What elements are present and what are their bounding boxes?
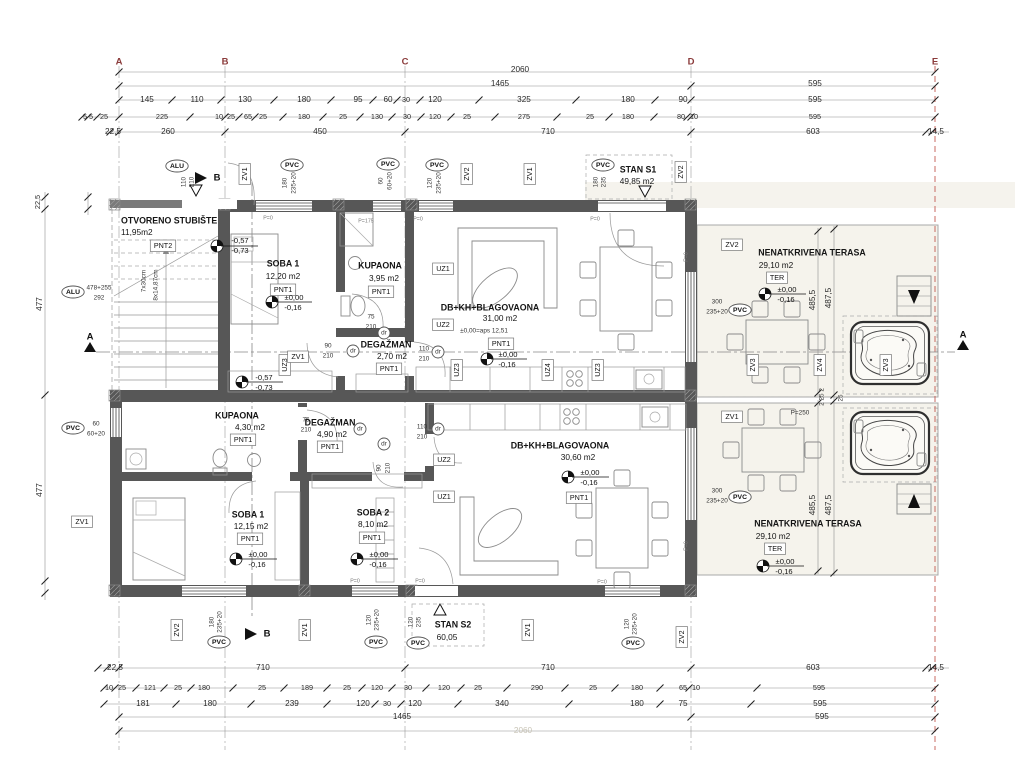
- plan-label: 477: [35, 483, 44, 497]
- svg-text:180: 180: [282, 177, 289, 188]
- svg-text:595: 595: [809, 112, 821, 121]
- svg-text:ZV3: ZV3: [748, 358, 757, 371]
- svg-text:B: B: [222, 57, 229, 68]
- plan-label: 25: [838, 394, 845, 402]
- svg-text:±0,00: ±0,00: [581, 468, 600, 477]
- svg-text:31,00 m2: 31,00 m2: [483, 313, 518, 323]
- plan-label: 25: [474, 683, 482, 692]
- grid-letter-e: E: [932, 57, 938, 68]
- plan-label: PVC: [365, 636, 387, 648]
- plan-label: 14,5: [928, 663, 944, 672]
- svg-text:300: 300: [712, 488, 723, 495]
- plan-label: 710: [541, 127, 555, 136]
- svg-text:4,30 m2: 4,30 m2: [235, 422, 265, 432]
- plan-label: 25: [586, 112, 594, 121]
- plan-label: 485,5: [808, 494, 817, 515]
- svg-text:UZ1: UZ1: [436, 264, 450, 273]
- plan-label: -0,73: [231, 246, 248, 255]
- plan-label: 25: [343, 683, 351, 692]
- plan-label: 30: [383, 699, 391, 708]
- plan-label: ZV3: [880, 355, 892, 376]
- plan-label: 189: [301, 683, 313, 692]
- plan-label: 477: [35, 297, 44, 311]
- plan-label: PVC: [377, 158, 399, 170]
- plan-label: 180: [630, 699, 644, 708]
- section-letter-a-right: A: [960, 330, 967, 341]
- svg-text:235+20: 235+20: [436, 172, 443, 194]
- plan-label: TER: [765, 543, 786, 555]
- svg-text:-0,73: -0,73: [255, 383, 272, 392]
- plan-label: PVC: [592, 159, 614, 171]
- svg-text:SOBA 1: SOBA 1: [267, 258, 300, 268]
- svg-text:STAN S1: STAN S1: [620, 164, 657, 174]
- svg-text:90: 90: [678, 95, 688, 104]
- svg-text:12,15 m2: 12,15 m2: [234, 521, 269, 531]
- svg-text:25: 25: [258, 683, 266, 692]
- plan-label: 25: [339, 112, 347, 121]
- svg-text:C: C: [402, 57, 409, 68]
- svg-text:180: 180: [631, 683, 643, 692]
- plan-label: 90: [324, 343, 332, 350]
- plan-label: 300: [712, 488, 723, 495]
- plan-label: ZV2: [675, 162, 687, 183]
- plan-label: 25: [227, 112, 235, 121]
- plan-label: 10: [105, 683, 113, 692]
- plan-label: 130: [371, 112, 383, 121]
- plan-label: 290: [531, 683, 543, 692]
- plan-label: 487,5: [824, 287, 833, 308]
- svg-text:25: 25: [343, 683, 351, 692]
- plan-label: 8,10 m2: [358, 519, 388, 529]
- plan-label: PNT1: [237, 533, 262, 545]
- plan-label: 595: [813, 683, 825, 692]
- svg-text:325: 325: [517, 95, 531, 104]
- svg-text:P=0: P=0: [590, 216, 600, 222]
- plan-label: P=0: [597, 579, 607, 585]
- plan-label: P=0: [413, 216, 423, 222]
- svg-text:595: 595: [808, 79, 822, 88]
- plan-label: 595: [809, 112, 821, 121]
- svg-text:P=250: P=250: [791, 410, 810, 417]
- plan-label: UZ3: [451, 360, 463, 381]
- svg-text:25: 25: [474, 683, 482, 692]
- plan-label: ZV2: [171, 620, 183, 641]
- svg-text:90: 90: [376, 464, 383, 472]
- svg-text:-0,16: -0,16: [580, 478, 597, 487]
- svg-text:-0,73: -0,73: [231, 246, 248, 255]
- svg-text:±0,00: ±0,00: [285, 293, 304, 302]
- svg-text:290: 290: [531, 683, 543, 692]
- svg-text:485,5: 485,5: [808, 494, 817, 515]
- svg-text:5: 5: [83, 112, 87, 121]
- plan-label: 340: [495, 699, 509, 708]
- svg-text:120: 120: [408, 616, 415, 627]
- plan-label: 120: [429, 112, 441, 121]
- plan-label: 11,95m2: [121, 227, 153, 237]
- svg-text:25: 25: [838, 394, 845, 402]
- plan-label: 2,70 m2: [377, 351, 407, 361]
- plan-label: 235: [416, 616, 423, 627]
- svg-text:PVC: PVC: [285, 162, 299, 169]
- svg-text:PNT1: PNT1: [570, 493, 588, 502]
- plan-label: 235+20: [706, 498, 728, 505]
- plan-label: -0,16: [580, 478, 597, 487]
- plan-label: 60: [383, 95, 393, 104]
- plan-label: 120: [438, 683, 450, 692]
- plan-label: 25: [174, 683, 182, 692]
- plan-label: -0,16: [498, 360, 515, 369]
- plan-label: 65: [244, 112, 252, 121]
- plan-label: ZV1: [288, 351, 309, 363]
- floor-plan-drawing: ABCDE20601465595145110130180956030120325…: [0, 0, 1024, 768]
- svg-text:11,95m2: 11,95m2: [121, 227, 153, 237]
- svg-text:±0,00: ±0,00: [776, 557, 795, 566]
- svg-text:±0,00=aps 12,51: ±0,00=aps 12,51: [460, 328, 508, 335]
- svg-text:60: 60: [378, 177, 385, 185]
- svg-text:30: 30: [383, 699, 391, 708]
- plan-label: PVC: [407, 637, 429, 649]
- svg-text:P=0: P=0: [350, 578, 360, 584]
- plan-label: 235+20: [436, 172, 443, 194]
- svg-text:60+20: 60+20: [387, 172, 394, 190]
- svg-text:25: 25: [227, 112, 235, 121]
- plan-label: ZV2: [676, 627, 688, 648]
- svg-text:75: 75: [367, 314, 375, 321]
- plan-label: -0,16: [369, 560, 386, 569]
- svg-text:2 25 2: 2 25 2: [819, 388, 826, 406]
- svg-text:29,10 m2: 29,10 m2: [756, 531, 791, 541]
- plan-label: ALU: [62, 286, 84, 298]
- svg-text:120: 120: [408, 699, 422, 708]
- svg-text:25: 25: [589, 683, 597, 692]
- plan-label: 180: [209, 616, 216, 627]
- svg-text:60: 60: [92, 421, 100, 428]
- svg-text:A: A: [960, 330, 967, 341]
- plan-label: ±0,00: [370, 550, 389, 559]
- svg-text:30: 30: [404, 683, 412, 692]
- svg-text:PVC: PVC: [430, 162, 444, 169]
- svg-text:210: 210: [301, 427, 312, 434]
- plan-label: 180: [621, 95, 635, 104]
- plan-label: PVC: [62, 422, 84, 434]
- plan-label: 180: [593, 176, 600, 187]
- svg-text:2060: 2060: [511, 65, 530, 74]
- svg-text:PVC: PVC: [733, 307, 747, 314]
- svg-text:25: 25: [339, 112, 347, 121]
- grid-letter-b: B: [222, 57, 229, 68]
- svg-text:ZV2: ZV2: [462, 167, 471, 180]
- plan-label: ±0,00: [778, 285, 797, 294]
- plan-label: 710: [256, 663, 270, 672]
- plan-label: P=250: [791, 410, 810, 417]
- room-label-db-upper: DB+KH+BLAGOVAONA: [441, 302, 540, 312]
- plan-label: 60: [378, 177, 385, 185]
- svg-text:dr: dr: [381, 330, 388, 337]
- plan-label: 22,5: [107, 663, 123, 672]
- room-label-terasa-lower: NENATKRIVENA TERASA: [754, 518, 862, 528]
- svg-text:29,10 m2: 29,10 m2: [759, 260, 794, 270]
- svg-text:110: 110: [417, 424, 428, 431]
- svg-text:235+20: 235+20: [706, 309, 728, 316]
- plan-label: ±0,00: [776, 557, 795, 566]
- svg-text:260: 260: [161, 127, 175, 136]
- svg-text:130: 130: [238, 95, 252, 104]
- plan-label: 60: [92, 421, 100, 428]
- svg-text:10: 10: [105, 683, 113, 692]
- plan-label: ±0,00: [249, 550, 268, 559]
- svg-text:340: 340: [495, 699, 509, 708]
- svg-text:KUPAONA: KUPAONA: [215, 410, 259, 420]
- plan-label: P=0: [590, 216, 600, 222]
- plan-label: 10: [690, 112, 698, 121]
- plan-label: PNT1: [368, 286, 393, 298]
- plan-label: 275: [518, 112, 530, 121]
- plan-label: 120: [366, 614, 373, 625]
- svg-text:14,5: 14,5: [928, 127, 944, 136]
- svg-text:275: 275: [518, 112, 530, 121]
- plan-label: 130: [238, 95, 252, 104]
- svg-text:PNT1: PNT1: [363, 533, 381, 542]
- svg-text:UZ2: UZ2: [436, 320, 450, 329]
- plan-label: 235+20: [217, 611, 224, 633]
- room-label-kupaona-upper: KUPAONA: [358, 260, 402, 270]
- plan-label: 603: [806, 663, 820, 672]
- plan-label: 29,10 m2: [759, 260, 794, 270]
- svg-text:P=0: P=0: [415, 578, 425, 584]
- plan-label: UZ3: [592, 360, 604, 381]
- svg-text:22,5: 22,5: [105, 127, 121, 136]
- plan-label: P=0: [263, 215, 273, 221]
- plan-label: ZV4: [814, 355, 826, 376]
- plan-label: ZV1: [299, 620, 311, 641]
- plan-label: PVC: [729, 304, 751, 316]
- plan-label: ZV1: [722, 411, 743, 423]
- svg-text:-0,57: -0,57: [231, 236, 248, 245]
- svg-text:110: 110: [419, 346, 430, 353]
- svg-text:487,5: 487,5: [824, 494, 833, 515]
- svg-text:ZV2: ZV2: [677, 630, 686, 643]
- plan-label: dr: [432, 346, 444, 358]
- svg-text:210: 210: [189, 176, 196, 187]
- plan-label: 25: [259, 112, 267, 121]
- plan-label: 90: [678, 95, 688, 104]
- svg-text:120: 120: [429, 112, 441, 121]
- room-label-soba1-lower: SOBA 1: [232, 509, 265, 519]
- plan-label: 25: [463, 112, 471, 121]
- plan-label: 22,5: [105, 127, 121, 136]
- plan-label: 180: [622, 112, 634, 121]
- plan-label: 180: [282, 177, 289, 188]
- svg-text:PNT1: PNT1: [372, 287, 390, 296]
- plan-label: 292: [94, 295, 105, 302]
- svg-text:12,20 m2: 12,20 m2: [266, 271, 301, 281]
- plan-label: 30: [403, 112, 411, 121]
- svg-text:30,60 m2: 30,60 m2: [561, 452, 596, 462]
- svg-text:181: 181: [136, 699, 150, 708]
- svg-text:180: 180: [622, 112, 634, 121]
- plan-label: ±0,00: [285, 293, 304, 302]
- plan-label: 49,85 m2: [620, 176, 655, 186]
- plan-label: 120: [408, 616, 415, 627]
- plan-label: 450: [313, 127, 327, 136]
- plan-label: 65: [679, 683, 687, 692]
- plan-label: 180: [298, 112, 310, 121]
- svg-text:OTVORENO STUBIŠTE: OTVORENO STUBIŠTE: [121, 214, 217, 225]
- svg-text:120: 120: [356, 699, 370, 708]
- svg-text:ZV1: ZV1: [523, 623, 532, 636]
- svg-text:60,05: 60,05: [437, 632, 458, 642]
- svg-text:SOBA 1: SOBA 1: [232, 509, 265, 519]
- unit-label-s2: STAN S2: [435, 619, 472, 629]
- svg-text:60+20: 60+20: [87, 431, 105, 438]
- plan-label: 210: [385, 462, 392, 473]
- svg-text:PVC: PVC: [369, 639, 383, 646]
- svg-text:±0,00: ±0,00: [778, 285, 797, 294]
- svg-text:TER: TER: [770, 273, 784, 282]
- svg-text:10: 10: [690, 112, 698, 121]
- svg-text:478+255: 478+255: [86, 285, 112, 292]
- plan-label: 235+20: [706, 309, 728, 316]
- plan-label: PNT1: [230, 434, 255, 446]
- plan-label: 30: [404, 683, 412, 692]
- section-letter-b-bottom: B: [264, 629, 271, 640]
- plan-label: 235+20: [291, 172, 298, 194]
- svg-text:dr: dr: [350, 348, 357, 355]
- svg-text:235+20: 235+20: [706, 498, 728, 505]
- svg-text:2060: 2060: [514, 726, 533, 735]
- svg-text:ZV1: ZV1: [240, 167, 249, 180]
- svg-text:22,5: 22,5: [107, 663, 123, 672]
- plan-label: 60+20: [87, 431, 105, 438]
- svg-text:-0,16: -0,16: [498, 360, 515, 369]
- plan-label: UZ1: [434, 491, 455, 503]
- svg-text:5: 5: [89, 112, 93, 121]
- svg-text:PNT1: PNT1: [492, 339, 510, 348]
- plan-label: 12,15 m2: [234, 521, 269, 531]
- plan-label: 1465: [393, 712, 412, 721]
- plan-label: ZV1: [239, 164, 251, 185]
- plan-label: dr: [354, 423, 366, 435]
- plan-label: 210: [189, 176, 196, 187]
- plan-label: -0,16: [775, 567, 792, 576]
- plan-label: PVC: [622, 637, 644, 649]
- svg-text:D: D: [688, 57, 695, 68]
- plan-label: 31,00 m2: [483, 313, 518, 323]
- plan-label: 110: [190, 95, 203, 104]
- svg-text:8,10 m2: 8,10 m2: [358, 519, 388, 529]
- svg-text:210: 210: [323, 353, 334, 360]
- plan-label: 595: [813, 699, 827, 708]
- svg-text:110: 110: [190, 95, 203, 104]
- svg-text:235+20: 235+20: [291, 172, 298, 194]
- plan-label: -0,73: [255, 383, 272, 392]
- svg-text:P=0: P=0: [683, 541, 689, 551]
- svg-text:180: 180: [203, 699, 217, 708]
- svg-text:PVC: PVC: [66, 425, 80, 432]
- svg-text:STAN S2: STAN S2: [435, 619, 472, 629]
- svg-text:595: 595: [813, 699, 827, 708]
- svg-text:P=175: P=175: [358, 218, 374, 224]
- svg-text:ZV1: ZV1: [300, 623, 309, 636]
- svg-text:710: 710: [256, 663, 270, 672]
- plan-label: PNT1: [359, 532, 384, 544]
- plan-label: ZV1: [524, 164, 536, 185]
- plan-label: ZV1: [72, 516, 93, 528]
- plan-label: 25: [118, 683, 126, 692]
- svg-text:PVC: PVC: [596, 162, 610, 169]
- svg-text:PVC: PVC: [411, 640, 425, 647]
- svg-text:UZ2: UZ2: [437, 455, 451, 464]
- svg-text:SOBA 2: SOBA 2: [357, 507, 390, 517]
- svg-text:292: 292: [94, 295, 105, 302]
- svg-text:±0,00: ±0,00: [499, 350, 518, 359]
- svg-text:189: 189: [301, 683, 313, 692]
- svg-text:49,85 m2: 49,85 m2: [620, 176, 655, 186]
- plan-label: 3,95 m2: [369, 273, 399, 283]
- svg-text:25: 25: [586, 112, 594, 121]
- svg-text:dr: dr: [357, 426, 364, 433]
- plan-label: 180: [198, 683, 210, 692]
- svg-text:145: 145: [140, 95, 154, 104]
- room-label-degazman-upper: DEGAŽMAN: [361, 338, 412, 349]
- svg-text:KUPAONA: KUPAONA: [358, 260, 402, 270]
- svg-text:25: 25: [118, 683, 126, 692]
- svg-text:180: 180: [209, 616, 216, 627]
- svg-text:±0,00: ±0,00: [249, 550, 268, 559]
- plan-label: 235+20: [374, 609, 381, 631]
- svg-text:130: 130: [371, 112, 383, 121]
- room-label-kupaona-lower: KUPAONA: [215, 410, 259, 420]
- svg-text:ZV2: ZV2: [172, 623, 181, 636]
- plan-label: 7x30cm: [141, 270, 148, 292]
- plan-label: 25: [589, 683, 597, 692]
- svg-text:PVC: PVC: [626, 640, 640, 647]
- svg-text:UZ1: UZ1: [437, 492, 451, 501]
- svg-text:ZV1: ZV1: [291, 352, 304, 361]
- room-label-stubiste: OTVORENO STUBIŠTE: [121, 214, 217, 225]
- svg-text:30: 30: [402, 95, 410, 104]
- plan-label: 181: [136, 699, 150, 708]
- svg-text:-0,16: -0,16: [369, 560, 386, 569]
- svg-text:450: 450: [313, 127, 327, 136]
- svg-text:7x30cm: 7x30cm: [141, 270, 148, 292]
- plan-label: 14,5: [928, 127, 944, 136]
- svg-text:1465: 1465: [393, 712, 412, 721]
- svg-text:UZ3: UZ3: [593, 363, 602, 377]
- svg-text:PVC: PVC: [733, 494, 747, 501]
- plan-label: 120: [428, 95, 442, 104]
- plan-label: dr: [378, 327, 390, 339]
- svg-text:E: E: [932, 57, 938, 68]
- plan-label: -0,16: [777, 295, 794, 304]
- plan-label: 95: [353, 95, 363, 104]
- svg-text:A: A: [87, 332, 94, 343]
- svg-text:25: 25: [259, 112, 267, 121]
- plan-label: 710: [541, 663, 555, 672]
- plan-label: PNT1: [317, 441, 342, 453]
- svg-text:120: 120: [428, 95, 442, 104]
- svg-text:710: 710: [541, 127, 555, 136]
- plan-label: -0,16: [248, 560, 265, 569]
- svg-text:210: 210: [419, 356, 430, 363]
- svg-text:ZV2: ZV2: [676, 165, 685, 178]
- plan-label: 180: [203, 699, 217, 708]
- plan-label: UZ1: [433, 263, 454, 275]
- svg-text:DEGAŽMAN: DEGAŽMAN: [305, 416, 356, 427]
- svg-text:DB+KH+BLAGOVAONA: DB+KH+BLAGOVAONA: [511, 440, 610, 450]
- plan-label: 110: [419, 346, 430, 353]
- room-label-terasa-upper: NENATKRIVENA TERASA: [758, 247, 866, 257]
